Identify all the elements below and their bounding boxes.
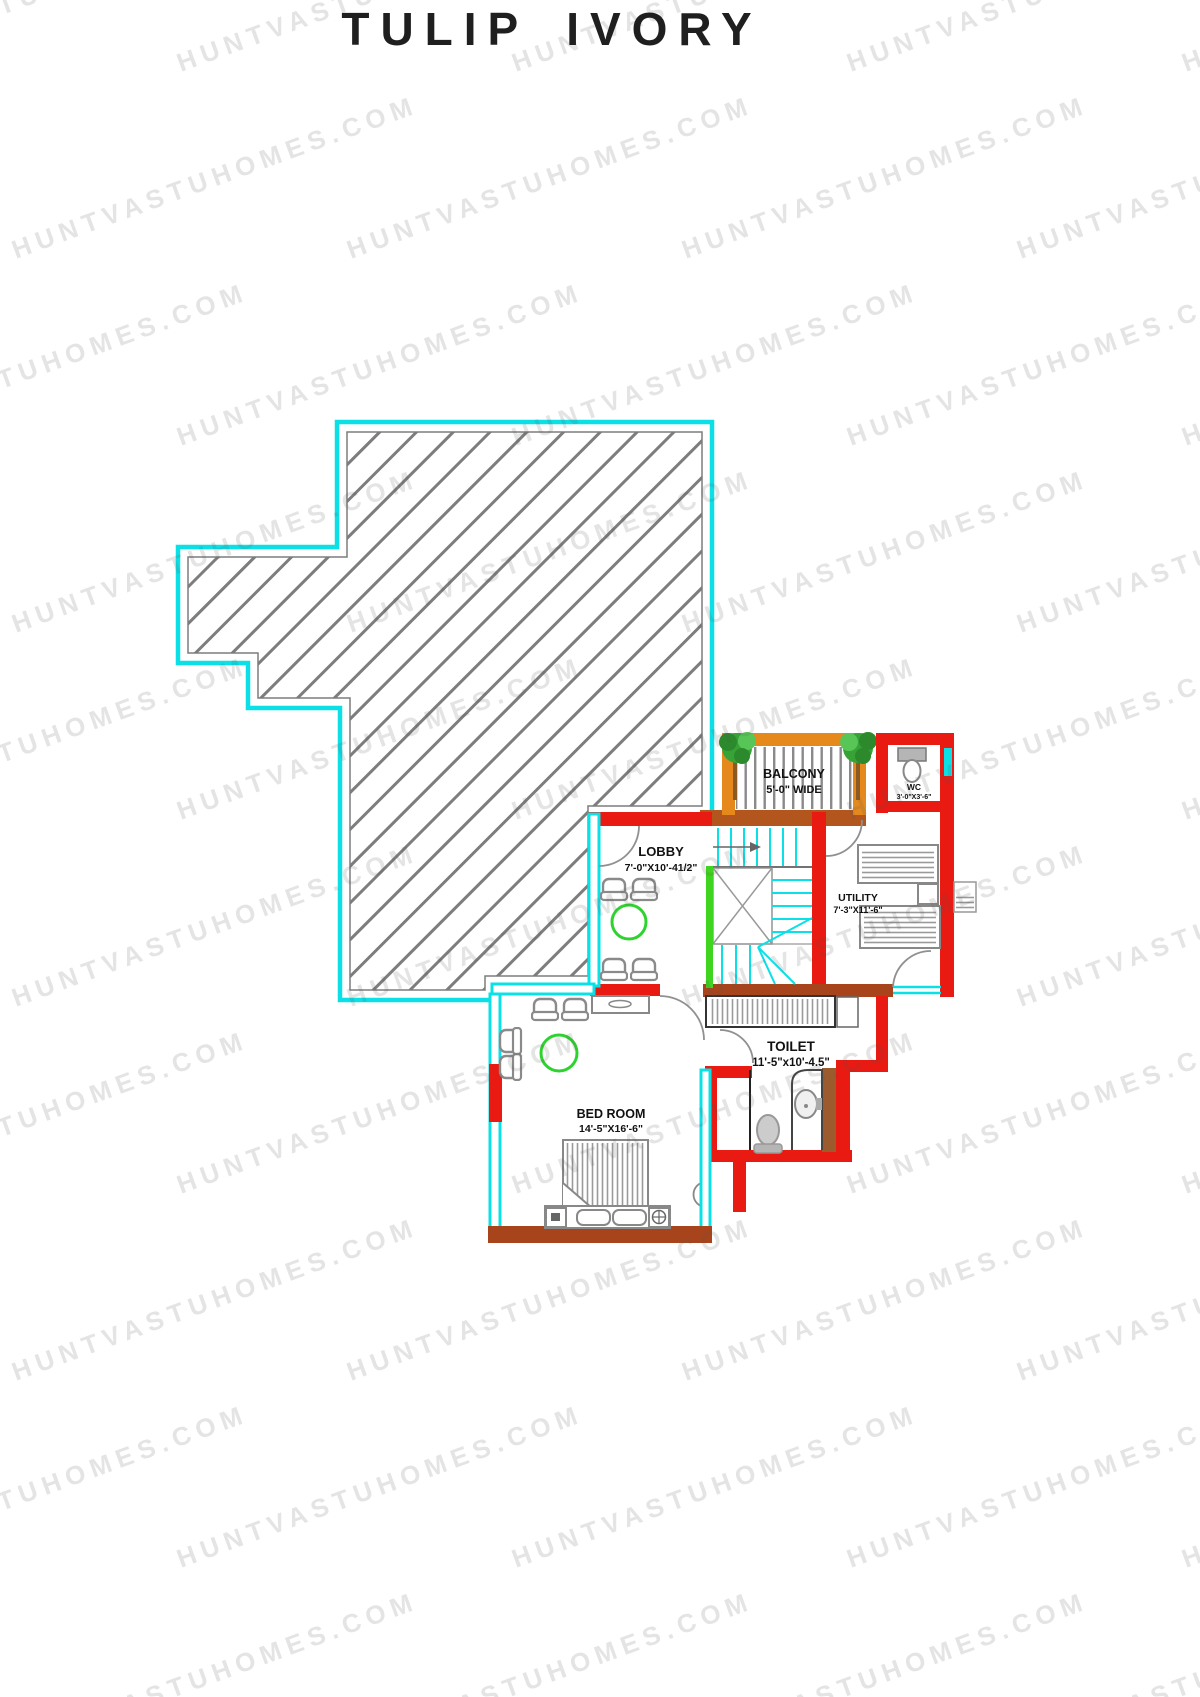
wc-label: WC [907,782,921,792]
wc-dims: 3'-0"X3'-6" [897,794,932,801]
lobby-room: LOBBY 7'-0"X10'-41/2" [589,814,697,986]
bed-icon [545,1140,670,1228]
lobby-left-wall [589,814,599,986]
tv-console-icon [592,996,649,1013]
terrace-area [178,422,712,1000]
washbasin-icon [795,1090,822,1118]
round-table-icon [612,905,646,939]
chair-icon [500,1054,521,1080]
chair-icon [601,879,627,900]
round-table-icon [541,1035,577,1071]
utility-dims: 7'-3"X11'-6" [833,905,882,915]
bedroom-label: BED ROOM [577,1107,646,1121]
staircase [706,828,812,988]
chair-icon [631,879,657,900]
chair-icon [500,1028,521,1054]
toilet-fixture-icon [898,748,926,782]
chair-icon [601,959,627,980]
utility-door-arc [893,951,931,987]
toilet-room: TOILET 11'-5"x10'-4.5" [694,996,889,1212]
balcony-label: BALCONY [763,767,825,781]
bedroom-door-arc [660,996,704,1040]
balcony: BALCONY 5'-0" WIDE [700,732,877,826]
floor-plan-drawing: BALCONY 5'-0" WIDE WC 3'-0"X3'-6" [0,0,1200,1697]
chair-icon [532,999,558,1020]
chair-icon [631,959,657,980]
toilet-pan-icon [754,1115,782,1153]
stair-green-edge [706,866,713,988]
wc-window [944,748,952,776]
page-title: TULIP IVORY [0,2,1104,56]
lobby-dims: 7'-0"X10'-41/2" [625,862,698,874]
utility-label: UTILITY [838,892,878,904]
utility-right-wall [940,810,954,997]
pillow-icon [613,1210,646,1225]
chair-icon [562,999,588,1020]
toilet-label: TOILET [767,1039,816,1054]
bedroom: BED ROOM 14'-5"X16'-6" [488,984,712,1243]
lobby-label: LOBBY [638,844,684,859]
toilet-door-arc [720,1030,753,1063]
lobby-door-arc [599,826,639,866]
bedroom-dims: 14'-5"X16'-6" [579,1123,643,1135]
stairs-right-wall [812,812,826,988]
balcony-dims: 5'-0" WIDE [766,784,822,796]
toilet-dims: 11'-5"x10'-4.5" [752,1057,830,1069]
floor-plan-page: BALCONY 5'-0" WIDE WC 3'-0"X3'-6" [0,0,1200,1697]
pillow-icon [577,1210,610,1225]
wc-room: WC 3'-0"X3'-6" [876,733,954,813]
lobby-top-wall [588,812,712,826]
